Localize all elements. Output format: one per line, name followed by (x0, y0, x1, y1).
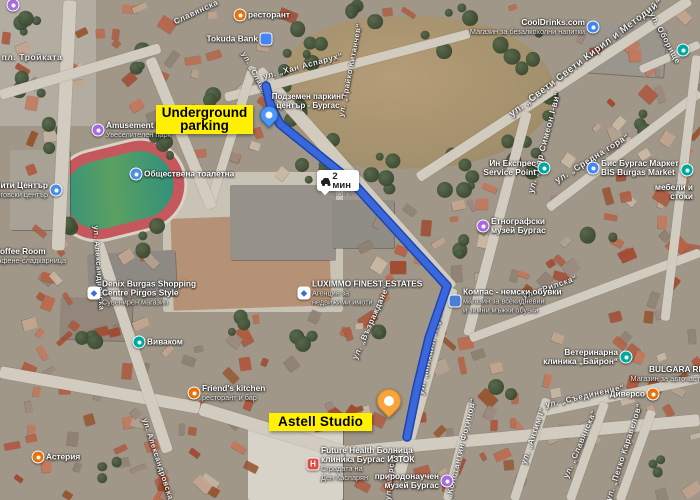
icon-dot (591, 166, 595, 170)
icon-dot (134, 172, 138, 176)
restaurant-icon[interactable] (188, 387, 201, 400)
poi-name: Service Point (483, 168, 536, 177)
poi-category: търговски център (0, 190, 48, 199)
street-label: ул. Оборище (648, 10, 683, 65)
museum-icon[interactable] (477, 220, 490, 233)
icon-dot (54, 188, 58, 192)
start-poi-label-line1: Подземен паркинг (272, 92, 345, 101)
poi-name: Tokuda Bank (207, 35, 258, 44)
poi-label: природонаученмузей Бургас (375, 472, 439, 490)
poi-label: Tokuda Bank (207, 35, 258, 44)
poi-name: Centre Pirgos Style (102, 289, 196, 298)
poi-category: Сувенирен магазин (102, 298, 196, 307)
icon-dot (445, 479, 449, 483)
icon-dot (137, 340, 141, 344)
poi-name: Диверсо (610, 390, 645, 399)
poi-name: ресторант (248, 11, 290, 20)
poi-name: BIS Burgas Market (601, 168, 679, 177)
poi-name: музей Бургас (375, 481, 439, 490)
poi-label: BULGARA REМагазин за авточасти (631, 365, 700, 383)
teal-icon[interactable] (681, 164, 694, 177)
poi-category: и зимни мъжки обувки (463, 306, 562, 315)
store-icon[interactable]: ◆ (298, 287, 311, 300)
poi-name: CoolDrinks.com (470, 18, 585, 27)
map-canvas[interactable]: Славянскаул. „Хан Аспарух“ул. „Славянска… (0, 0, 700, 500)
poi-name: BULGARA RE (631, 365, 700, 374)
poi-name: LUXIMMO FINEST ESTATES (312, 280, 422, 289)
poi-category: недвижими имоти (312, 298, 422, 307)
icon-dot (36, 455, 40, 459)
poi-name: клиника „Байрон“ (543, 357, 618, 366)
restaurant-icon[interactable] (234, 9, 247, 22)
teal-icon[interactable] (538, 162, 551, 175)
poi-category: Магазин за авточасти (631, 374, 700, 383)
vet-icon[interactable] (620, 351, 633, 364)
poi-label: Компас - немски обувкимагазин за всекидн… (463, 288, 562, 315)
street-label: ул. Александровска (141, 417, 176, 500)
astell-studio-label: Astell Studio (269, 413, 372, 431)
car-icon (321, 180, 330, 185)
poi-label: Ин ЕкспресService Point (483, 159, 536, 177)
poi-label: Ветеринарнаклиника „Байрон“ (543, 348, 618, 366)
poi-name: Виваком (147, 338, 183, 347)
street-label: ул. „Славянска“ (562, 408, 599, 479)
poi-category: Магазин за безалкохолни напитки (470, 27, 585, 36)
poi-name: музей Бургас (491, 226, 546, 235)
poi-label: Диверсо (610, 390, 645, 399)
poi-label: CoolDrinks.comМагазин за безалкохолни на… (470, 18, 585, 36)
poi-name: Обществена тоалетна (144, 170, 234, 179)
poi-label: Етнографскимузей Бургас (491, 217, 546, 235)
icon-dot (481, 224, 485, 228)
street-label: ул. „Хан Аспарух“ (262, 51, 344, 81)
poi-label: Виваком (147, 338, 183, 347)
poi-name: Friend's kitchen (202, 384, 265, 393)
attraction-icon[interactable] (92, 124, 105, 137)
poi-label: Астерия (46, 453, 80, 462)
poi-category: ресторант и бар (202, 393, 265, 402)
route-duration-badge[interactable]: 2 мин 350 m (317, 170, 359, 191)
museum-icon[interactable] (441, 475, 454, 488)
street-label: пл. Тройката (2, 52, 63, 62)
poi-label: LUXIMMO FINEST ESTATESАгенция занедвижим… (312, 280, 422, 307)
icon-dot (681, 48, 685, 52)
poi-name: Компас - немски обувки (463, 288, 562, 297)
underground-parking-label-line2: parking (156, 119, 253, 132)
poi-label: Coffee Roomкафене-сладкарница (0, 247, 66, 265)
restaurant-icon[interactable] (32, 451, 45, 464)
route-duration: 2 мин (332, 172, 356, 190)
shop-icon[interactable] (587, 21, 600, 34)
poi-label: мебели истоки (655, 183, 693, 201)
poi-name: Астерия (46, 453, 80, 462)
icon-dot (624, 355, 628, 359)
poi-category: кафене-сладкарница (0, 256, 66, 265)
poi-label: Denix Burgas ShoppingCentre Pirgos Style… (102, 280, 196, 307)
poi-label: Friend's kitchenресторант и бар (202, 384, 265, 402)
telecom-icon[interactable] (133, 336, 146, 349)
icon-dot (192, 391, 196, 395)
underground-parking-label: Underground parking (156, 105, 253, 134)
poi-name: Coffee Room (0, 247, 66, 256)
store-icon[interactable]: ◆ (88, 287, 101, 300)
icon-dot (96, 128, 100, 132)
icon-dot (238, 13, 242, 17)
poi-category: магазин за всекидневни (463, 297, 562, 306)
poi-name: стоки (655, 192, 693, 201)
poi-label: Обществена тоалетна (144, 170, 234, 179)
toilet-icon[interactable] (130, 168, 143, 181)
poi-category: Агенция за (312, 289, 422, 298)
start-poi-label-line2: център - Бургас (272, 101, 345, 110)
attraction-icon[interactable] (7, 0, 20, 12)
icon-dot (11, 3, 15, 7)
poi-label: Бис Бургас МаркетBIS Burgas Market (601, 159, 679, 177)
teal-icon[interactable] (677, 44, 690, 57)
shoes-icon[interactable] (449, 295, 462, 308)
route-distance: 350 m (334, 190, 356, 198)
bank-icon[interactable] (260, 33, 273, 46)
hospital-icon[interactable]: H (307, 458, 320, 471)
poi-name: Сити Център (0, 181, 48, 190)
start-poi-label: Подземен паркинг център - Бургас (272, 92, 345, 110)
street-label: ул. „Петко Каравелов“ (604, 402, 644, 500)
poi-label: ресторант (248, 11, 290, 20)
icon-dot (651, 392, 655, 396)
street-label: ул. „Антим I“ (519, 406, 547, 465)
icon-dot (542, 166, 546, 170)
poi-label: Сити Центъртърговски център (0, 181, 48, 199)
restaurant-icon[interactable] (647, 388, 660, 401)
icon-dot (685, 168, 689, 172)
street-label: Славянска (172, 0, 219, 26)
icon-dot (591, 25, 595, 29)
market-icon[interactable] (587, 162, 600, 175)
mall-icon[interactable] (50, 184, 63, 197)
poi-name: клиника Бургас ИЗТОК (321, 455, 414, 464)
